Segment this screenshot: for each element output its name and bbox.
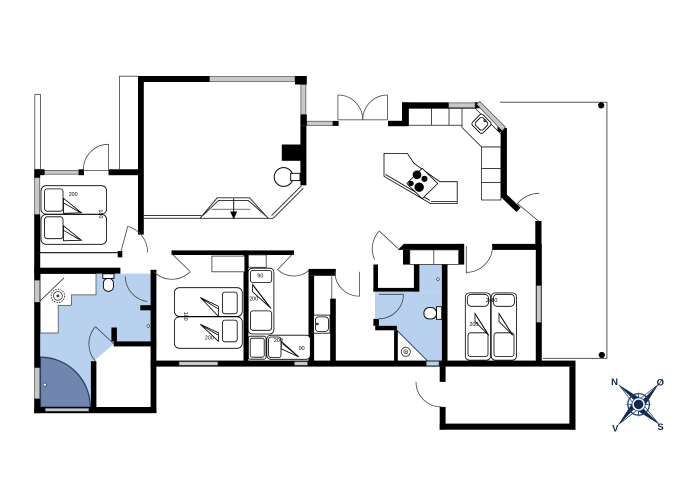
svg-text:200: 200 xyxy=(249,297,258,303)
svg-text:N: N xyxy=(611,377,618,388)
svg-text:200: 200 xyxy=(274,338,283,344)
svg-text:200: 200 xyxy=(469,322,478,328)
svg-text:90: 90 xyxy=(299,346,305,352)
svg-text:200: 200 xyxy=(205,335,214,341)
svg-text:V: V xyxy=(612,424,619,435)
svg-text:180: 180 xyxy=(182,312,188,321)
svg-text:90: 90 xyxy=(257,274,263,280)
svg-text:2x80: 2x80 xyxy=(486,298,498,304)
svg-text:180: 180 xyxy=(97,209,103,218)
svg-text:S: S xyxy=(657,422,663,433)
svg-text:200: 200 xyxy=(69,192,78,198)
svg-text:Ø: Ø xyxy=(657,377,664,388)
